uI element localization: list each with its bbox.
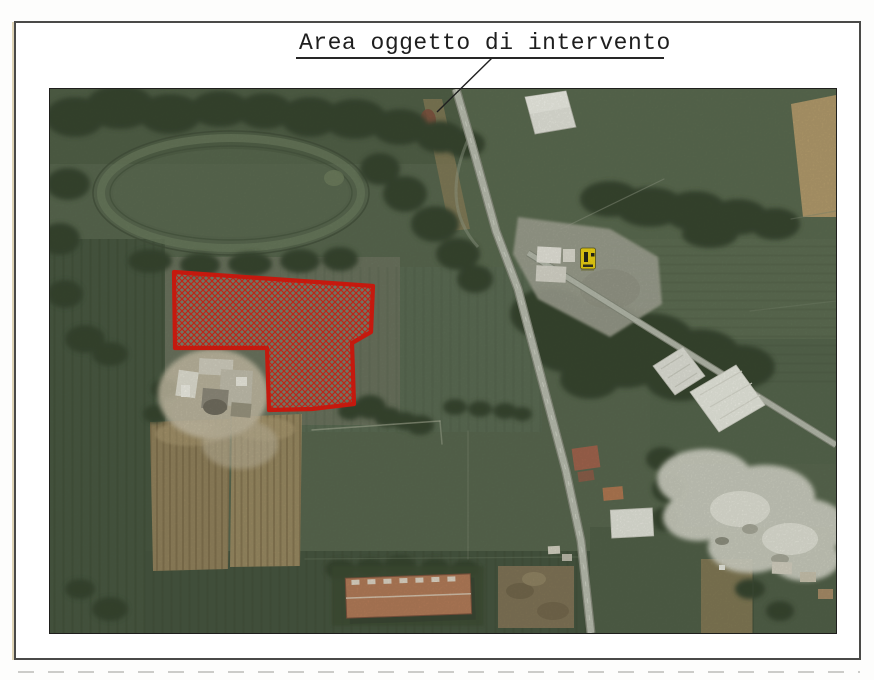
scan-bottom-artifact	[18, 671, 860, 673]
film-grain	[50, 89, 836, 633]
annotation-label: Area oggetto di intervento	[299, 30, 671, 56]
aerial-photo	[49, 88, 837, 634]
scan-edge-artifact	[12, 22, 14, 660]
scanned-document-page: Area oggetto di intervento	[0, 0, 874, 680]
annotation-underline	[296, 57, 664, 59]
